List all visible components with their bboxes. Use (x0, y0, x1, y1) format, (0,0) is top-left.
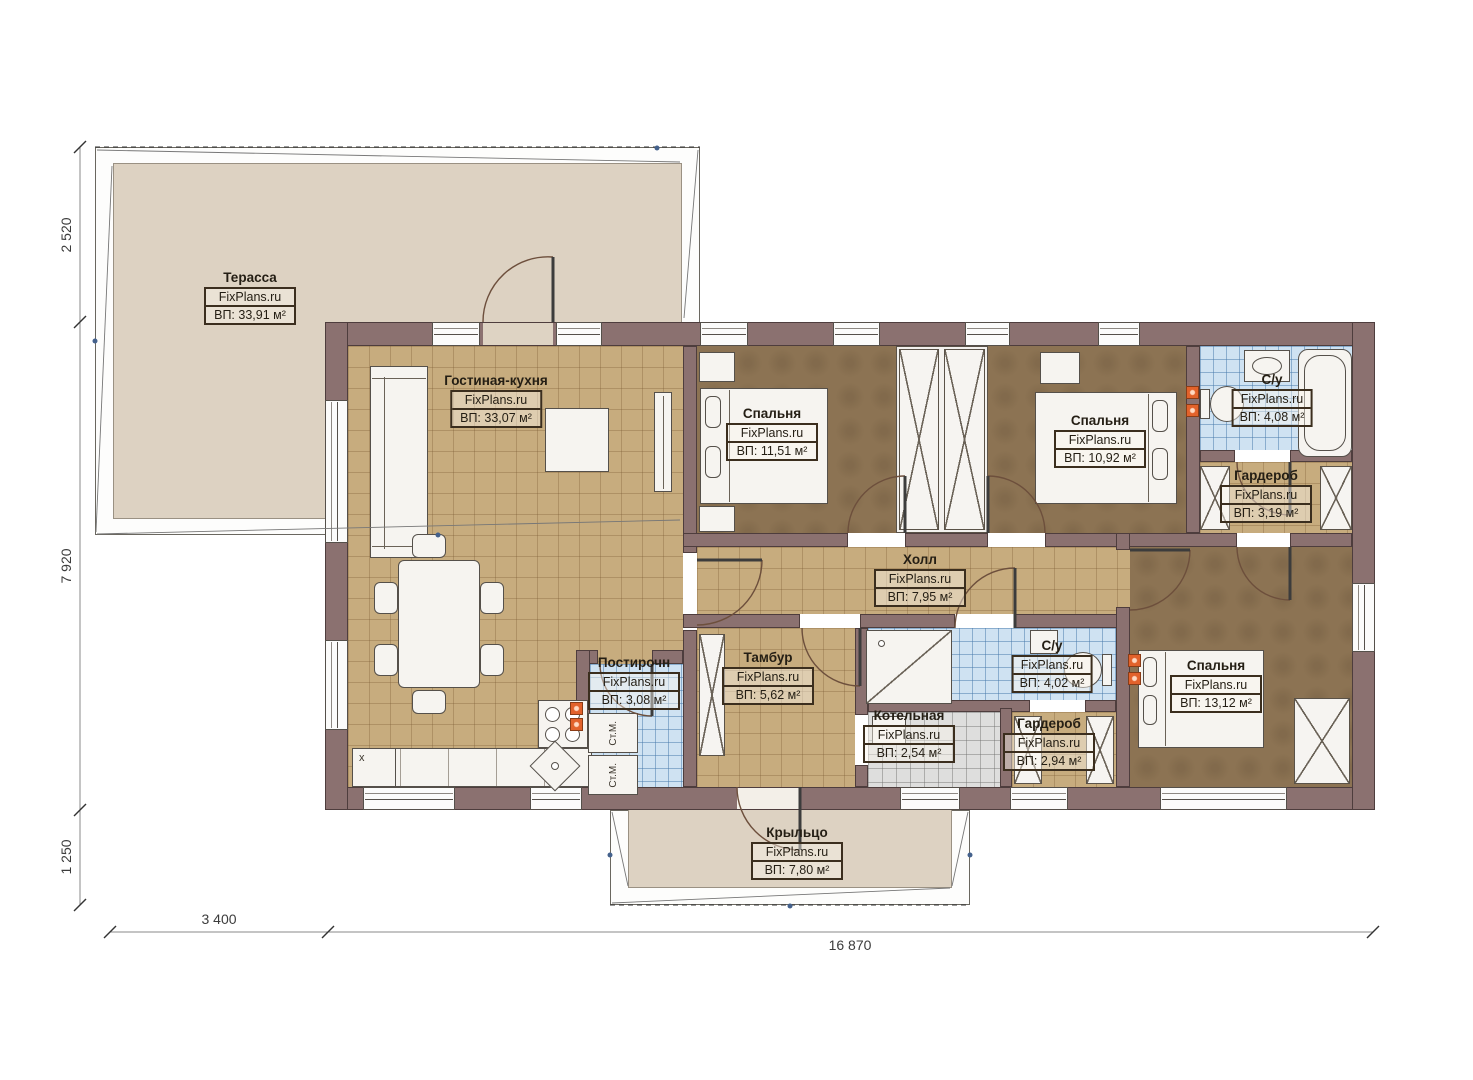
room-name: С/у (1261, 372, 1282, 387)
nightstand (699, 352, 735, 382)
window-top-1 (432, 322, 480, 346)
wall-hall-south-b (860, 614, 955, 628)
room-name: Спальня (1071, 413, 1129, 428)
washer-label: Ст.М. (608, 721, 619, 746)
wall-marker (570, 702, 583, 715)
room-info-box: FixPlans.ru ВП: 11,51 м² (726, 423, 818, 461)
terrace-door-opening (483, 323, 553, 345)
wall-hall-south-a (683, 614, 800, 628)
room-name: Тамбур (744, 650, 793, 665)
wall-marker (1186, 404, 1199, 417)
brand-watermark: FixPlans.ru (1234, 391, 1311, 407)
brand-watermark: FixPlans.ru (206, 289, 294, 305)
room-label-porch: Крыльцо FixPlans.ru ВП: 7,80 м² (751, 825, 843, 880)
room-name: Спальня (743, 406, 801, 421)
dining-chair (374, 582, 398, 614)
room-info-box: FixPlans.ru ВП: 3,08 м² (588, 672, 680, 710)
wall-bedroom2-east (1186, 346, 1200, 533)
pillow (1143, 657, 1157, 687)
room-info-box: FixPlans.ru ВП: 4,02 м² (1012, 655, 1093, 693)
pillow (1143, 695, 1157, 725)
wall-living-east-b (683, 630, 697, 787)
room-label-bedroom1: Спальня FixPlans.ru ВП: 11,51 м² (726, 406, 818, 461)
brand-watermark: FixPlans.ru (724, 669, 812, 685)
room-name: Гардероб (1234, 468, 1298, 483)
pillow (1152, 400, 1168, 432)
washing-machine: Ст.М. (588, 755, 638, 795)
room-area: ВП: 3,08 м² (590, 690, 678, 708)
wall-hall-north-a (683, 533, 848, 547)
wall-marker (1186, 386, 1199, 399)
tv-unit (654, 392, 672, 492)
wardrobe-unit (899, 349, 939, 530)
room-name: Терасса (223, 270, 277, 285)
room-name: Гардероб (1017, 716, 1081, 731)
room-area: ВП: 13,12 м² (1172, 693, 1260, 711)
wall-hall-north-d (1290, 533, 1352, 547)
room-info-box: FixPlans.ru ВП: 2,94 м² (1003, 733, 1095, 771)
brand-watermark: FixPlans.ru (452, 392, 540, 408)
room-area: ВП: 3,19 м² (1222, 503, 1310, 521)
brand-watermark: FixPlans.ru (728, 425, 816, 441)
wall-bath2-south-b (1085, 700, 1116, 712)
room-area: ВП: 11,51 м² (728, 441, 816, 459)
brand-watermark: FixPlans.ru (1056, 432, 1144, 448)
wall-tambour-east-b (855, 765, 868, 787)
toilet-tank (1102, 654, 1112, 686)
coffee-table (545, 408, 609, 472)
dimension-bottom-2: 16 870 (829, 937, 872, 953)
room-name: Крыльцо (766, 825, 827, 840)
dining-chair (412, 690, 446, 714)
window-left-1 (325, 400, 348, 543)
wardrobe-unit (1294, 698, 1350, 784)
room-area: ВП: 4,02 м² (1014, 673, 1091, 691)
brand-watermark: FixPlans.ru (1172, 677, 1260, 693)
room-label-laundry: Постирочн FixPlans.ru ВП: 3,08 м² (588, 655, 680, 710)
room-area: ВП: 7,80 м² (753, 860, 841, 878)
room-info-box: FixPlans.ru ВП: 2,54 м² (863, 725, 955, 763)
entrance-door-opening (737, 788, 800, 809)
brand-watermark: FixPlans.ru (753, 844, 841, 860)
room-area: ВП: 33,91 м² (206, 305, 294, 323)
wall-bedroom3-west-b (1116, 607, 1130, 787)
brand-watermark: FixPlans.ru (865, 727, 953, 743)
sink-drain (551, 762, 559, 770)
nightstand (699, 506, 735, 532)
room-area: ВП: 4,08 м² (1234, 407, 1311, 425)
wall-exterior-left (325, 322, 348, 810)
room-info-box: FixPlans.ru ВП: 5,62 м² (722, 667, 814, 705)
room-area: ВП: 33,07 м² (452, 408, 540, 426)
room-label-terrace: Терасса FixPlans.ru ВП: 33,91 м² (204, 270, 296, 325)
wall-bath1-south-a (1200, 450, 1235, 462)
washer-label: Ст.М. (608, 763, 619, 788)
room-info-box: FixPlans.ru ВП: 33,07 м² (450, 390, 542, 428)
pillow (705, 446, 721, 478)
floor-plan: x Ст.М. Ст.М. (0, 0, 1473, 1080)
dining-chair (480, 644, 504, 676)
room-label-wardrobe2: Гардероб FixPlans.ru ВП: 2,94 м² (1003, 716, 1095, 771)
window-top-4 (833, 322, 880, 346)
window-right-1 (1352, 583, 1375, 652)
room-info-box: FixPlans.ru ВП: 7,95 м² (874, 569, 966, 607)
room-label-hall: Холл FixPlans.ru ВП: 7,95 м² (874, 552, 966, 607)
room-info-box: FixPlans.ru ВП: 3,19 м² (1220, 485, 1312, 523)
room-label-bedroom3: Спальня FixPlans.ru ВП: 13,12 м² (1170, 658, 1262, 713)
room-info-box: FixPlans.ru ВП: 4,08 м² (1232, 389, 1313, 427)
room-label-tambour: Тамбур FixPlans.ru ВП: 5,62 м² (722, 650, 814, 705)
room-area: ВП: 10,92 м² (1056, 448, 1144, 466)
brand-watermark: FixPlans.ru (1222, 487, 1310, 503)
window-bottom-1 (363, 787, 455, 810)
window-top-5 (965, 322, 1010, 346)
window-top-3 (700, 322, 748, 346)
pillow (1152, 448, 1168, 480)
wall-hall-north-b (905, 533, 988, 547)
brand-watermark: FixPlans.ru (876, 571, 964, 587)
room-info-box: FixPlans.ru ВП: 13,12 м² (1170, 675, 1262, 713)
dining-chair (480, 582, 504, 614)
room-label-wardrobe1: Гардероб FixPlans.ru ВП: 3,19 м² (1220, 468, 1312, 523)
wall-marker (570, 718, 583, 731)
wall-exterior-right (1352, 322, 1375, 810)
wall-hall-north-c (1045, 533, 1237, 547)
room-label-bedroom2: Спальня FixPlans.ru ВП: 10,92 м² (1054, 413, 1146, 468)
room-name: Котельная (874, 708, 945, 723)
room-name: С/у (1041, 638, 1062, 653)
kitchen-corner-cabinet: x (352, 748, 396, 787)
room-area: ВП: 5,62 м² (724, 685, 812, 703)
room-name: Постирочн (598, 655, 670, 670)
room-label-bathroom1: С/у FixPlans.ru ВП: 4,08 м² (1232, 372, 1313, 427)
wall-marker (1128, 654, 1141, 667)
corner-mark: x (359, 752, 365, 764)
room-info-box: FixPlans.ru ВП: 33,91 м² (204, 287, 296, 325)
room-info-box: FixPlans.ru ВП: 10,92 м² (1054, 430, 1146, 468)
wardrobe-unit (1320, 466, 1352, 530)
room-label-boiler: Котельная FixPlans.ru ВП: 2,54 м² (863, 708, 955, 763)
brand-watermark: FixPlans.ru (1005, 735, 1093, 751)
window-bottom-4 (1010, 787, 1068, 810)
room-label-living: Гостиная-кухня FixPlans.ru ВП: 33,07 м² (444, 373, 547, 428)
nightstand (1040, 352, 1080, 384)
pillow (705, 396, 721, 428)
dimension-bottom-1: 3 400 (201, 911, 236, 927)
dimension-left-1: 2 520 (58, 217, 74, 252)
brand-watermark: FixPlans.ru (1014, 657, 1091, 673)
dining-chair (412, 534, 446, 558)
room-name: Спальня (1187, 658, 1245, 673)
toilet-tank (1200, 389, 1210, 419)
shower-drain (878, 640, 885, 647)
room-area: ВП: 7,95 м² (876, 587, 964, 605)
window-left-2 (325, 640, 348, 730)
brand-watermark: FixPlans.ru (590, 674, 678, 690)
window-bottom-3 (900, 787, 960, 810)
room-area: ВП: 2,54 м² (865, 743, 953, 761)
dimension-left-2: 7 920 (58, 548, 74, 583)
window-top-2 (556, 322, 602, 346)
room-info-box: FixPlans.ru ВП: 7,80 м² (751, 842, 843, 880)
dimension-left-3: 1 250 (58, 839, 74, 874)
room-area: ВП: 2,94 м² (1005, 751, 1093, 769)
wall-bedroom3-west-a (1116, 533, 1130, 550)
wall-marker (1128, 672, 1141, 685)
room-name: Холл (903, 552, 937, 567)
washing-machine: Ст.М. (588, 713, 638, 753)
room-name: Гостиная-кухня (444, 373, 547, 388)
window-top-6 (1098, 322, 1140, 346)
wall-living-east-a (683, 346, 697, 553)
dining-chair (374, 644, 398, 676)
dining-table (398, 560, 480, 688)
room-label-bathroom2: С/у FixPlans.ru ВП: 4,02 м² (1012, 638, 1093, 693)
sofa (370, 366, 428, 558)
wall-hall-south-c (1015, 614, 1130, 628)
window-bottom-5 (1160, 787, 1287, 810)
wardrobe-unit (944, 349, 985, 530)
